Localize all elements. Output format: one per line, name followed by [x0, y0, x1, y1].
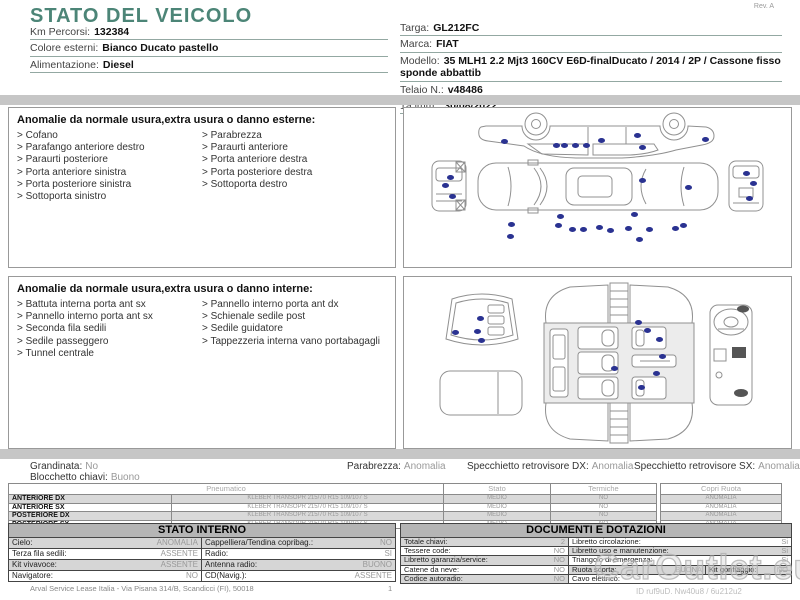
tire-row: ANTERIORE DX KLEBER TRANSOPR 215/70 R15 …	[9, 495, 657, 504]
table-row: Terza fila sedili:ASSENTE Radio:SI	[9, 549, 395, 560]
list-item: Porta anteriore sinistra	[17, 167, 202, 179]
row-label: Antenna radio:	[205, 560, 257, 570]
damage-dot	[447, 175, 454, 180]
stato-interno-table: STATO INTERNO Cielo:ANOMALIA Cappelliera…	[8, 523, 396, 582]
separator-bar	[0, 449, 800, 459]
field-value: FIAT	[436, 38, 459, 50]
damage-dot	[561, 143, 568, 148]
tire-stato: MEDIO	[444, 495, 551, 504]
table-row: Totale chiavi:2 Libretto circolazione:Si	[401, 538, 791, 547]
field-label: Km Percorsi:	[30, 26, 90, 38]
damage-dot	[607, 228, 614, 233]
row-value: NO	[554, 566, 565, 574]
damage-dot	[477, 316, 484, 321]
damage-dot	[569, 227, 576, 232]
damage-dot	[702, 137, 709, 142]
row-value: ANOMALIA	[157, 538, 198, 548]
damage-dot	[557, 214, 564, 219]
damage-dot	[646, 227, 653, 232]
list-item: Tappezzeria interna vano portabagagli	[202, 336, 387, 348]
list-item: Sedile guidatore	[202, 323, 387, 335]
damage-dot	[572, 143, 579, 148]
damage-dot	[580, 227, 587, 232]
list-item: Porta anteriore destra	[202, 154, 387, 166]
tire-spec: KLEBER TRANSOPR 215/70 R15 109/107 S	[172, 495, 444, 504]
interior-anomalies-panel: Anomalie da normale usura,extra usura o …	[8, 276, 396, 449]
field-marca: Marca:FIAT	[400, 36, 782, 52]
damage-dot	[639, 145, 646, 150]
field-label: Marca:	[400, 38, 432, 50]
damage-dot	[474, 329, 481, 334]
row-value: Si	[781, 538, 788, 546]
row-label: Cappelliera/Tendina copribag.:	[205, 538, 313, 548]
tire-stato: MEDIO	[444, 503, 551, 512]
damage-dot	[625, 226, 632, 231]
damage-dot	[508, 222, 515, 227]
copri-value: ANOMALIA	[661, 512, 782, 521]
row-value: NO	[186, 571, 198, 581]
damage-dot	[656, 337, 663, 342]
separator-bar	[0, 95, 800, 105]
header-left-fields: Km Percorsi:132384 Colore esterni:Bianco…	[30, 24, 388, 73]
damage-dot	[636, 237, 643, 242]
row-value: SI	[384, 549, 392, 559]
tire-row: ANTERIORE SX KLEBER TRANSOPR 215/70 R15 …	[9, 503, 657, 512]
list-item: Battuta interna porta ant sx	[17, 299, 202, 311]
field-alimentazione: Alimentazione:Diesel	[30, 57, 388, 73]
field-value: GL212FC	[433, 22, 479, 34]
interior-damage-dots	[404, 277, 791, 448]
list-item: Seconda fila sedili	[17, 323, 202, 335]
list-item: Parafango anteriore destro	[17, 142, 202, 154]
row-label: Tessere code:	[404, 547, 451, 555]
row-label: Catene da neve:	[404, 566, 459, 574]
list-item: Pannello interno porta ant sx	[17, 311, 202, 323]
summary-value: Anomalia	[758, 461, 800, 472]
summary-label: Parabrezza:	[347, 461, 401, 472]
list-item: Parabrezza	[202, 130, 387, 142]
summary-value: Anomalia	[592, 461, 634, 472]
revision-label: Rev. A	[754, 3, 774, 10]
field-label: Telaio N.:	[400, 84, 444, 96]
damage-dot	[672, 226, 679, 231]
tire-position: ANTERIORE SX	[9, 503, 172, 512]
damage-dot	[750, 181, 757, 186]
row-value: NO	[380, 538, 392, 548]
field-km: Km Percorsi:132384	[30, 24, 388, 40]
field-colore: Colore esterni:Bianco Ducato pastello	[30, 40, 388, 56]
damage-dot	[746, 196, 753, 201]
field-value: Diesel	[103, 59, 134, 71]
table-row: Cielo:ANOMALIA Cappelliera/Tendina copri…	[9, 538, 395, 549]
list-item: Paraurti posteriore	[17, 154, 202, 166]
anomaly-list-left: Cofano Parafango anteriore destro Paraur…	[17, 130, 202, 203]
list-item: Tunnel centrale	[17, 348, 202, 360]
row-label: Cielo:	[12, 538, 32, 548]
damage-dot	[680, 223, 687, 228]
field-value: Bianco Ducato pastello	[102, 42, 218, 54]
damage-dot	[659, 354, 666, 359]
damage-dot	[507, 234, 514, 239]
damage-dot	[685, 185, 692, 190]
row-value: NO	[554, 547, 565, 555]
field-value: 132384	[94, 26, 129, 38]
field-label: Targa:	[400, 22, 429, 34]
row-value: 2	[561, 538, 565, 546]
caroutlet-watermark: CarOutlet.eu	[594, 548, 800, 588]
footer-page-number: 1	[388, 584, 392, 593]
table-title: STATO INTERNO	[9, 524, 395, 538]
row-label: Kit vivavoce:	[12, 560, 57, 570]
tire-termiche: NO	[551, 512, 657, 521]
tire-spec: KLEBER TRANSOPR 215/70 R15 109/107 S	[172, 512, 444, 521]
tire-position: POSTERIORE DX	[9, 512, 172, 521]
damage-dot	[449, 194, 456, 199]
summary-value: Buono	[111, 472, 140, 483]
tire-position: ANTERIORE DX	[9, 495, 172, 504]
row-label: Radio:	[205, 549, 228, 559]
copri-value: ANOMALIA	[661, 503, 782, 512]
footer-company: Arval Service Lease Italia - Via Pisana …	[30, 584, 254, 593]
list-item: Pannello interno porta ant dx	[202, 299, 387, 311]
summary-label: Grandinata:	[30, 461, 82, 472]
tire-stato: MEDIO	[444, 512, 551, 521]
damage-dot	[635, 320, 642, 325]
tire-header-pneumatico: Pneumatico	[9, 484, 444, 495]
copri-row: ANOMALIA	[661, 512, 782, 521]
section-title: Anomalie da normale usura,extra usura o …	[9, 108, 395, 130]
damage-dot	[596, 225, 603, 230]
summary-value: Anomalia	[404, 461, 446, 472]
vehicle-status-report: STATO DEL VEICOLO Rev. A Km Percorsi:132…	[0, 0, 800, 600]
section-title: Anomalie da normale usura,extra usura o …	[9, 277, 395, 299]
tire-termiche: NO	[551, 503, 657, 512]
copri-header: Copri Ruota	[661, 484, 782, 495]
row-label: Navigatore:	[12, 571, 53, 581]
damage-dot	[653, 371, 660, 376]
field-label: Alimentazione:	[30, 59, 99, 71]
damage-dot	[638, 385, 645, 390]
damage-dot	[631, 212, 638, 217]
damage-dot	[442, 183, 449, 188]
exterior-damage-diagram	[403, 107, 792, 268]
row-label: Libretto circolazione:	[572, 538, 641, 546]
exterior-damage-dots	[404, 108, 791, 267]
anomaly-list-right: Pannello interno porta ant dx Schienale …	[202, 299, 387, 360]
damage-dot	[644, 328, 651, 333]
row-value: ASSENTE	[355, 571, 392, 581]
copri-value: ANOMALIA	[661, 495, 782, 504]
row-label: Libretto garanzia/service:	[404, 556, 488, 564]
tire-termiche: NO	[551, 495, 657, 504]
damage-dot	[583, 143, 590, 148]
row-label: Codice autoradio:	[404, 575, 463, 583]
list-item: Sedile passeggero	[17, 336, 202, 348]
tire-row: POSTERIORE DX KLEBER TRANSOPR 215/70 R15…	[9, 512, 657, 521]
damage-dot	[634, 133, 641, 138]
row-label: Totale chiavi:	[404, 538, 447, 546]
list-item: Cofano	[17, 130, 202, 142]
copri-row: ANOMALIA	[661, 503, 782, 512]
row-label: Terza fila sedili:	[12, 549, 67, 559]
summary-specchietto-sx: Specchietto retrovisore SX:Anomalia	[634, 461, 800, 472]
tire-header-stato: Stato	[444, 484, 551, 495]
damage-dot	[452, 330, 459, 335]
list-item: Porta posteriore sinistra	[17, 179, 202, 191]
summary-label: Blocchetto chiavi:	[30, 472, 108, 483]
summary-parabrezza: Parabrezza:Anomalia	[347, 461, 446, 472]
summary-blocchetto: Blocchetto chiavi:Buono	[30, 472, 140, 483]
table-title: DOCUMENTI E DOTAZIONI	[401, 524, 791, 538]
row-label: CD(Navig.):	[205, 571, 247, 581]
field-label: Modello:	[400, 55, 440, 67]
field-targa: Targa:GL212FC	[400, 20, 782, 36]
row-value: ASSENTE	[161, 549, 198, 559]
table-row: Navigatore:NO CD(Navig.):ASSENTE	[9, 571, 395, 581]
list-item: Sottoporta sinistro	[17, 191, 202, 203]
damage-dot	[743, 171, 750, 176]
list-item: Sottoporta destro	[202, 179, 387, 191]
watermark-id-text: ID ruf9uD. Nw40u8 / 6u212u2	[636, 587, 742, 596]
field-value: 35 MLH1 2.2 Mjt3 160CV E6D-finalDucato /…	[400, 55, 781, 79]
tire-header-termiche: Termiche	[551, 484, 657, 495]
anomaly-list-left: Battuta interna porta ant sx Pannello in…	[17, 299, 202, 360]
damage-dot	[553, 143, 560, 148]
damage-dot	[639, 178, 646, 183]
anomaly-list-right: Parabrezza Paraurti anteriore Porta ante…	[202, 130, 387, 203]
row-value: ASSENTE	[161, 560, 198, 570]
summary-label: Specchietto retrovisore SX:	[634, 461, 755, 472]
summary-specchietto-dx: Specchietto retrovisore DX:Anomalia	[467, 461, 633, 472]
table-row: Kit vivavoce:ASSENTE Antenna radio:BUONO	[9, 560, 395, 571]
list-item: Paraurti anteriore	[202, 142, 387, 154]
damage-dot	[611, 366, 618, 371]
damage-dot	[478, 338, 485, 343]
interior-damage-diagram	[403, 276, 792, 449]
summary-grandinata: Grandinata:No	[30, 461, 98, 472]
damage-dot	[598, 138, 605, 143]
damage-dot	[501, 139, 508, 144]
row-value: NO	[554, 556, 565, 564]
list-item: Schienale sedile post	[202, 311, 387, 323]
damage-dot	[555, 223, 562, 228]
copri-row: ANOMALIA	[661, 495, 782, 504]
field-label: Colore esterni:	[30, 42, 98, 54]
field-modello: Modello:35 MLH1 2.2 Mjt3 160CV E6D-final…	[400, 53, 782, 82]
tire-spec: KLEBER TRANSOPR 215/70 R15 109/107 S	[172, 503, 444, 512]
summary-value: No	[85, 461, 98, 472]
exterior-anomalies-panel: Anomalie da normale usura,extra usura o …	[8, 107, 396, 268]
summary-label: Specchietto retrovisore DX:	[467, 461, 589, 472]
row-value: BUONO	[363, 560, 392, 570]
row-value: NO	[554, 575, 565, 583]
list-item: Porta posteriore destra	[202, 167, 387, 179]
field-value: v48486	[448, 84, 483, 96]
